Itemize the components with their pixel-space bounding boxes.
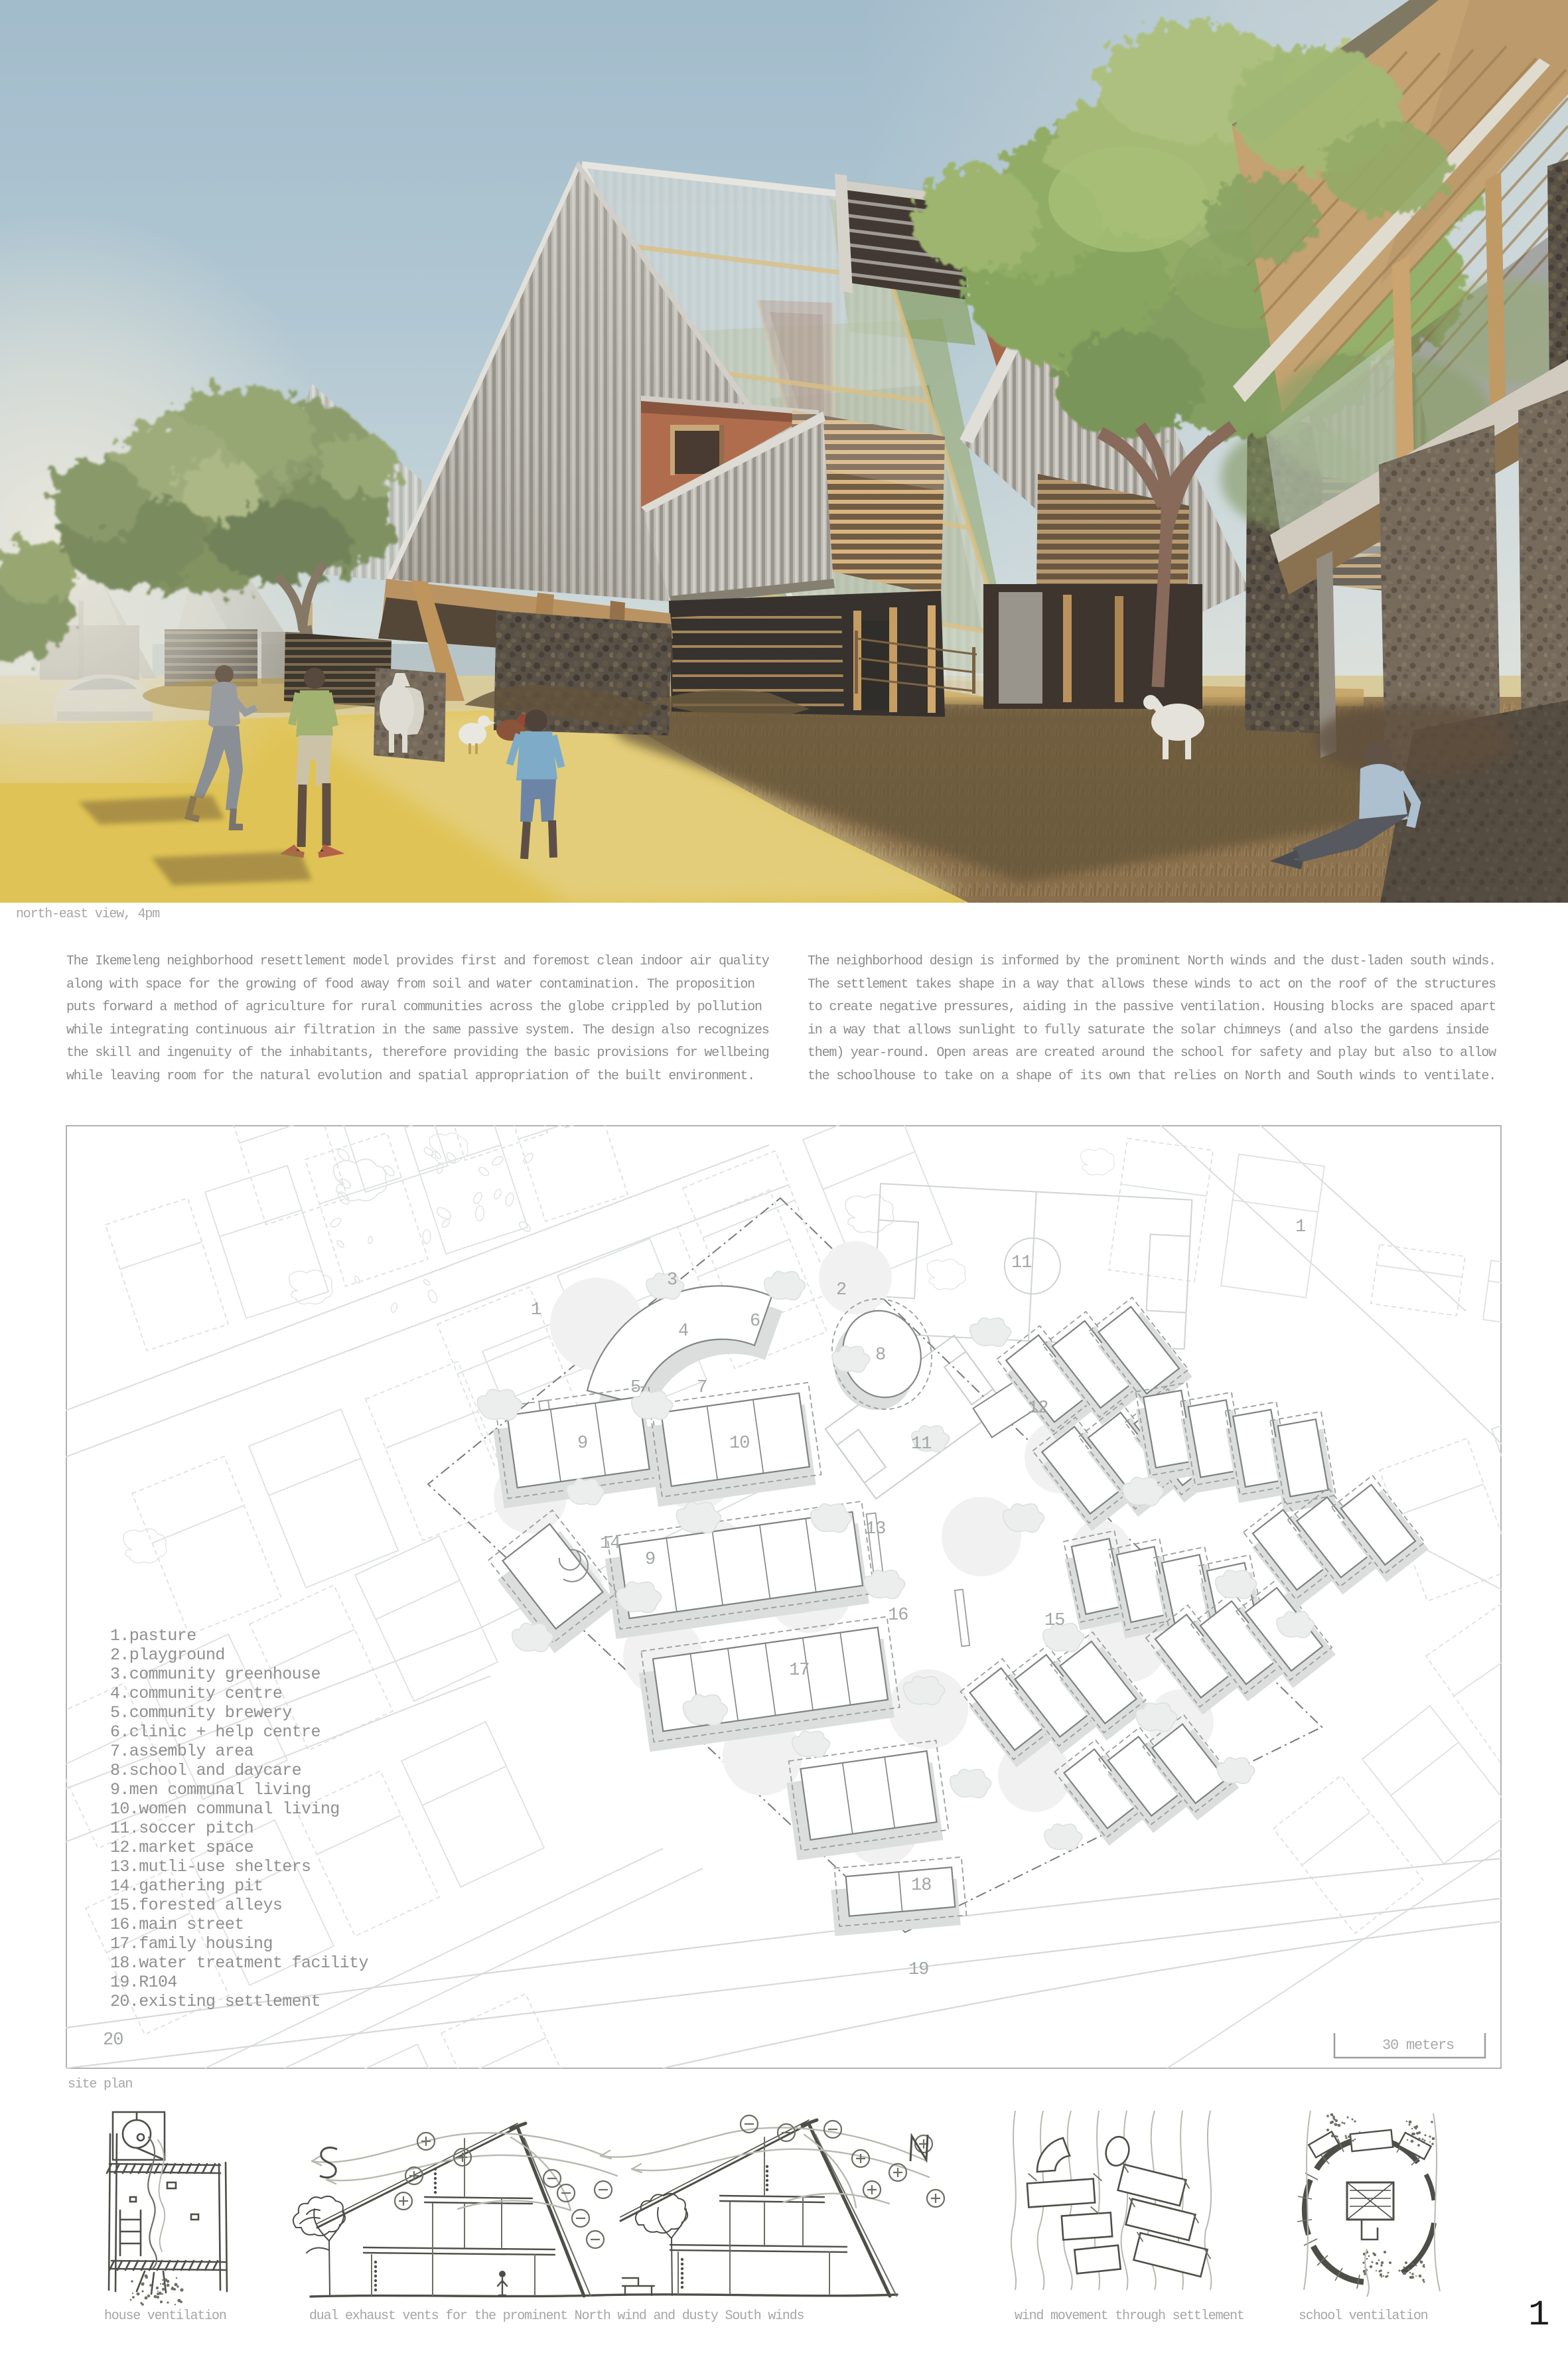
svg-text:4: 4 [678, 1322, 688, 1341]
svg-text:2: 2 [836, 1280, 846, 1300]
svg-text:11: 11 [1011, 1253, 1031, 1273]
svg-text:9: 9 [645, 1550, 655, 1570]
svg-text:5: 5 [630, 1378, 640, 1398]
svg-text:20: 20 [103, 2030, 123, 2050]
svg-text:7: 7 [697, 1378, 707, 1398]
svg-text:6: 6 [750, 1312, 760, 1331]
svg-text:11: 11 [911, 1434, 931, 1454]
svg-text:9: 9 [577, 1434, 587, 1454]
svg-text:3: 3 [667, 1270, 677, 1290]
svg-text:18: 18 [911, 1876, 931, 1896]
svg-text:1: 1 [1295, 1217, 1305, 1237]
svg-text:16: 16 [888, 1606, 908, 1626]
svg-text:12: 12 [1028, 1399, 1048, 1418]
svg-text:13: 13 [865, 1519, 885, 1539]
svg-text:19: 19 [908, 1960, 928, 1980]
svg-text:14: 14 [600, 1534, 620, 1554]
svg-text:10: 10 [729, 1434, 749, 1454]
svg-text:15: 15 [1044, 1611, 1064, 1631]
svg-text:17: 17 [789, 1661, 809, 1681]
svg-text:8: 8 [875, 1345, 885, 1365]
svg-text:1: 1 [531, 1300, 541, 1320]
svg-text:30 meters: 30 meters [1382, 2037, 1454, 2054]
